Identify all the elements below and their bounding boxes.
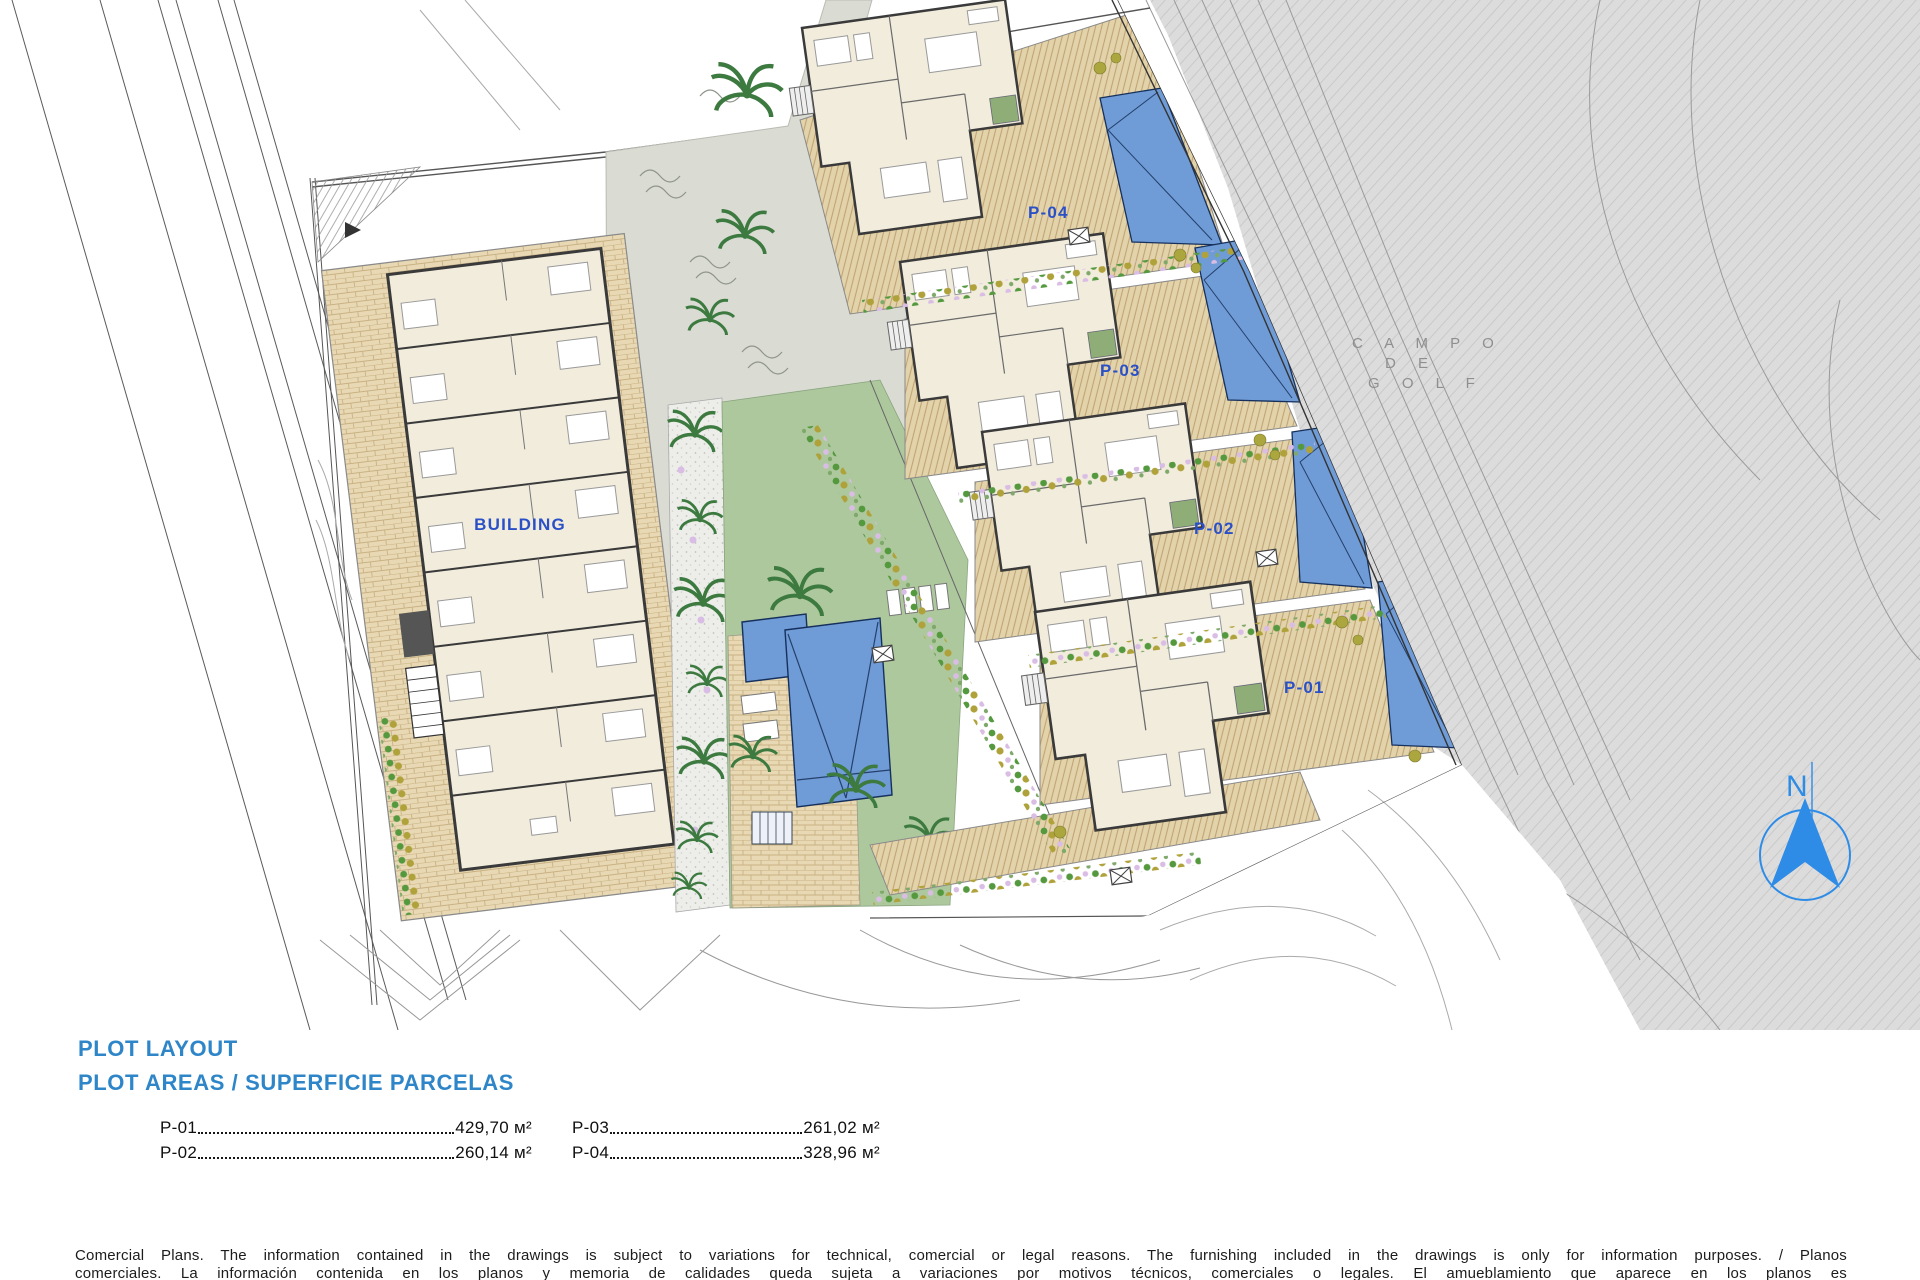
area-plot-label: P-02 [160, 1143, 197, 1163]
area-value: 328,96 м² [803, 1143, 880, 1163]
elevator [399, 610, 434, 657]
area-value: 429,70 м² [455, 1118, 532, 1138]
gate-mark [1256, 549, 1278, 567]
golf-label-line3: G O L F [1368, 375, 1484, 392]
plot-label-p03: P-03 [1100, 361, 1141, 380]
gate-mark [1110, 867, 1132, 885]
area-value: 260,14 м² [455, 1143, 532, 1163]
area-row-p02: P-02 260,14 м² [160, 1138, 532, 1163]
gravel-strip [668, 398, 732, 912]
plot-layout-page: C A M P O D E G O L F N [0, 0, 1920, 1280]
legend-block: PLOT LAYOUT PLOT AREAS / SUPERFICIE PARC… [78, 1036, 880, 1163]
leader-dots [198, 1132, 454, 1134]
pool-steps [752, 812, 792, 844]
golf-label-line2: D E [1385, 355, 1437, 372]
area-row-p04: P-04 328,96 м² [572, 1138, 880, 1163]
golf-label-line1: C A M P O [1352, 335, 1503, 352]
plot-label-p04: P-04 [1028, 203, 1069, 222]
plot-areas-table: P-01 429,70 м² P-02 260,14 м² P-03 261,0… [160, 1113, 880, 1163]
area-plot-label: P-01 [160, 1118, 197, 1138]
page-title: PLOT LAYOUT [78, 1036, 880, 1062]
site-plan-drawing: C A M P O D E G O L F N [0, 0, 1920, 1030]
gate-mark [872, 645, 894, 663]
page-subtitle: PLOT AREAS / SUPERFICIE PARCELAS [78, 1070, 880, 1096]
terrain-contours [320, 930, 1200, 1020]
area-plot-label: P-04 [572, 1143, 609, 1163]
plot-label-p02: P-02 [1194, 519, 1235, 538]
leader-dots [610, 1132, 802, 1134]
building-label: BUILDING [474, 515, 566, 534]
area-plot-label: P-03 [572, 1118, 609, 1138]
site-plan: C A M P O D E G O L F N [0, 0, 1920, 1030]
gate-mark [1068, 227, 1090, 245]
compass-n-label: N [1786, 770, 1808, 803]
area-value: 261,02 м² [803, 1118, 880, 1138]
main-pool [785, 618, 892, 807]
leader-dots [198, 1157, 454, 1159]
area-row-p03: P-03 261,02 м² [572, 1113, 880, 1138]
plot-label-p01: P-01 [1284, 678, 1325, 697]
disclaimer-text: Comercial Plans. The information contain… [75, 1247, 1847, 1280]
leader-dots [610, 1157, 802, 1159]
area-row-p01: P-01 429,70 м² [160, 1113, 532, 1138]
entrance-ramp [312, 167, 420, 262]
